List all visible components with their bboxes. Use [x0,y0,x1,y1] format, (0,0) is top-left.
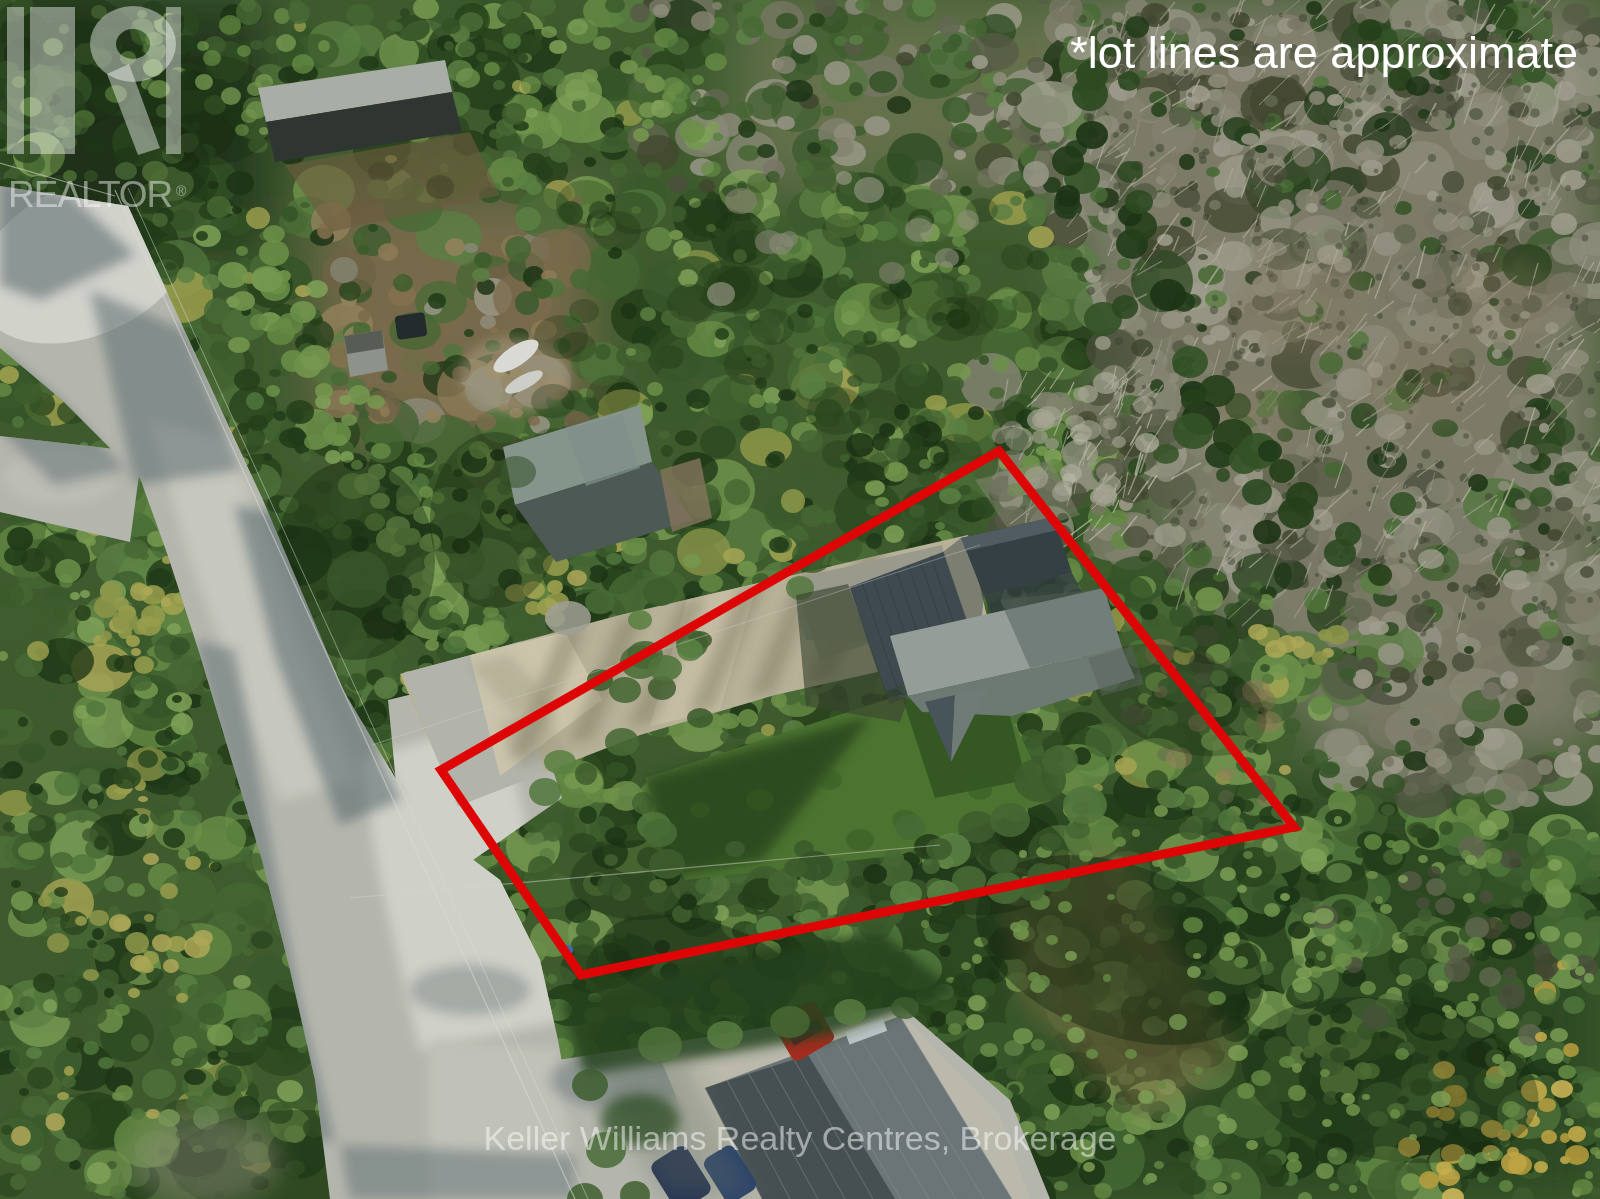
svg-text:®: ® [176,183,187,199]
svg-text:*lot lines are approximate: *lot lines are approximate [1070,27,1578,78]
svg-text:REALTOR: REALTOR [8,174,172,215]
svg-text:Keller Williams Realty Centres: Keller Williams Realty Centres, Brokerag… [484,1119,1117,1157]
